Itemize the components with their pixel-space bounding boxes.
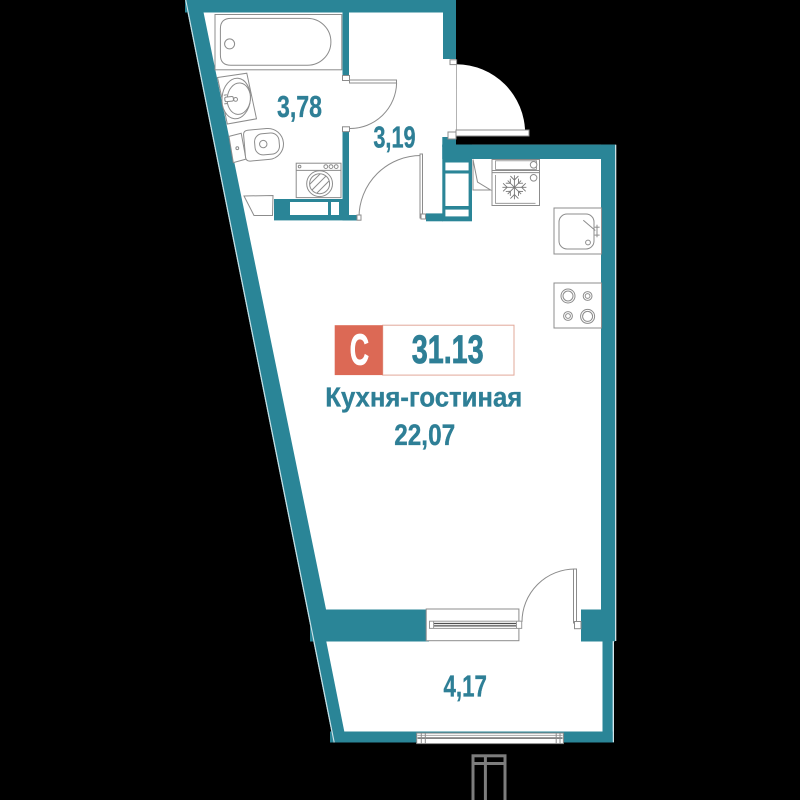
svg-text:31.13: 31.13 — [412, 328, 484, 372]
svg-text:Кухня-гостиная: Кухня-гостиная — [325, 382, 522, 413]
svg-text:C: C — [350, 326, 369, 375]
svg-text:3,78: 3,78 — [277, 89, 322, 124]
svg-text:22,07: 22,07 — [394, 419, 455, 452]
svg-text:4,17: 4,17 — [443, 669, 487, 704]
svg-text:3,19: 3,19 — [373, 119, 415, 154]
